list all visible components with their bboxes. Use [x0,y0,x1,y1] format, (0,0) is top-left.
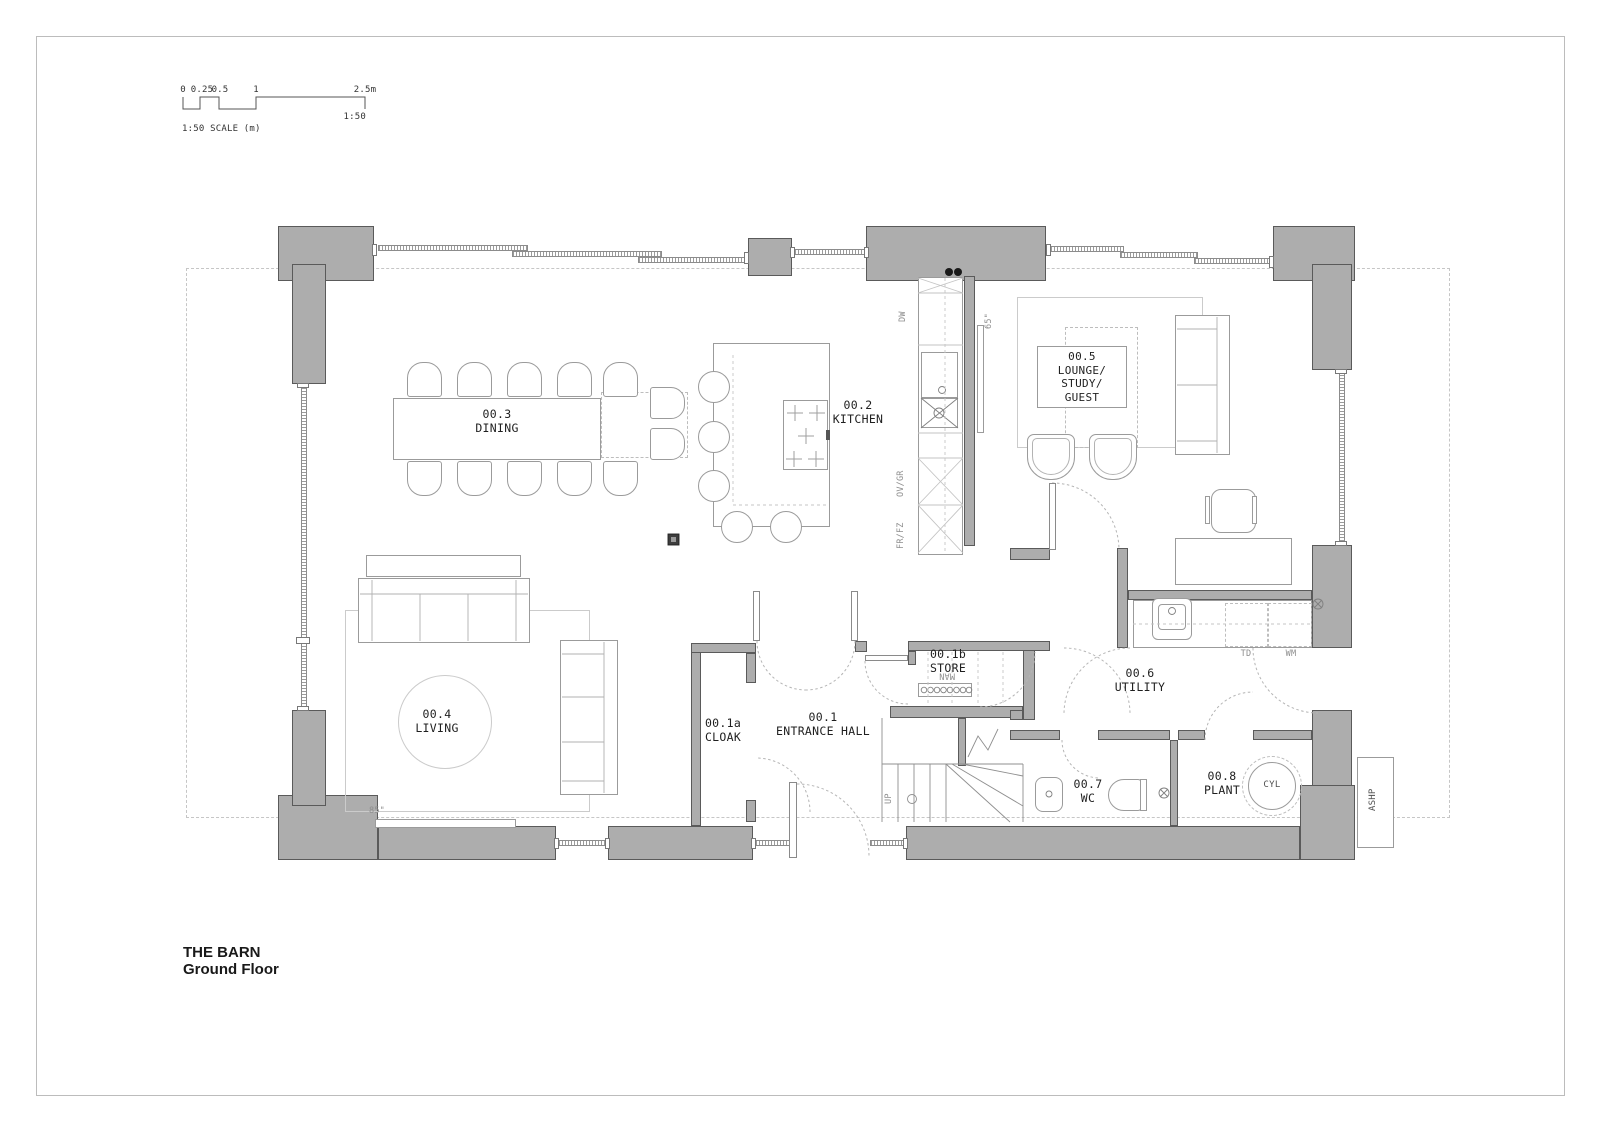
wall-segment [958,718,966,766]
window [558,840,606,846]
wall-segment [1010,548,1050,560]
wall-segment [292,710,326,806]
room-number: 00.2 [818,398,898,412]
wall-segment [1312,545,1352,648]
room-number: 00.1 [763,710,883,724]
toilet-cistern [1140,779,1147,811]
wall-segment [378,826,556,860]
dining-chair [507,362,542,397]
window-jamb [1046,244,1051,256]
room-name: LOUNGE/ [1038,364,1126,378]
heating-manifold [918,683,972,697]
living-sofa-2 [560,640,618,795]
desk-chair-armrest [1252,496,1257,524]
bar-stool [770,511,802,543]
wall-cloak-north [691,643,756,653]
dining-chair [557,362,592,397]
room-label-lounge: 00.5 LOUNGE/ STUDY/ GUEST [1037,346,1127,408]
room-name: KITCHEN [818,412,898,426]
window-jamb [605,838,610,849]
bar-stool [698,470,730,502]
room-name: PLANT [1182,783,1262,797]
utility-sink-bowl [1158,604,1186,630]
window-jamb [372,244,377,256]
dining-chair [457,461,492,496]
room-label-living: 00.4 LIVING [397,707,477,736]
room-number: 00.7 [1048,777,1128,791]
room-number: 00.6 [1100,666,1180,680]
wall-store-south [890,706,1023,718]
wall-segment [1010,710,1023,720]
window-west [301,386,307,708]
cylinder-label: CYL [1252,780,1292,791]
manifold-label: MAN [930,670,964,679]
window-jamb [744,252,749,264]
room-number: 00.1b [908,647,988,661]
wall-kitchen-lounge [964,276,975,546]
dining-chair-optional [603,461,638,496]
washing-machine [1268,603,1312,647]
dining-chair [457,362,492,397]
wall-tv-65 [977,325,984,433]
tub-chair [1027,434,1075,480]
bar-stool [698,421,730,453]
sliding-door-panel [1050,246,1124,252]
room-label-kitchen: 00.2 KITCHEN [818,398,898,427]
window [794,249,866,255]
room-number: 00.3 [437,407,557,421]
drawing-sheet: 0 0.25 0.5 1 2.5m 1:50 1:50 SCALE (m) 00… [0,0,1600,1131]
living-sofa [358,578,530,643]
wall-wc-north [1098,730,1170,740]
wall-segment [1312,264,1352,370]
tv-85-label: 85" [369,807,393,816]
wall-segment [866,226,1046,281]
kitchen-sink-basin [921,398,958,428]
wall-segment [1300,785,1355,860]
room-label-cloak: 00.1a CLOAK [683,716,763,745]
room-name: WC [1048,791,1128,805]
wall-segment [1023,650,1035,720]
sliding-door-panel [1194,258,1271,264]
room-label-hall: 00.1 ENTRANCE HALL [763,710,883,739]
window-jamb [1269,256,1274,268]
sliding-door-panel [638,257,746,263]
wall-segment [748,238,792,276]
window-jamb [297,383,309,388]
wall-segment [746,800,756,822]
window-mullion [296,637,310,644]
sliding-door-panel [378,245,528,251]
desk-chair-armrest [1205,496,1210,524]
tumble-dryer [1225,603,1268,647]
room-name: LIVING [397,721,477,735]
washing-machine-label: WM [1280,650,1302,659]
room-name: UTILITY [1100,680,1180,694]
scale-tick: 0 [178,85,188,95]
window-jamb [1335,541,1347,546]
title-block: THE BARN Ground Floor [183,944,279,978]
dining-chair-optional [650,428,685,460]
window-jamb [903,838,908,849]
window-jamb [864,247,869,258]
dining-chair [507,461,542,496]
scale-tick: 2.5m [348,85,382,95]
bar-stool [698,371,730,403]
room-name: GUEST [1038,391,1126,405]
scale-tick: 0.5 [210,85,230,95]
dining-chair-optional [650,387,685,419]
wall-segment [1117,548,1128,648]
wall-segment [608,826,753,860]
dining-chair [407,461,442,496]
room-label-utility: 00.6 UTILITY [1100,666,1180,695]
scale-caption: 1:50 SCALE (m) [182,124,302,134]
wall-segment [1312,710,1352,790]
room-number: 00.1a [683,716,763,730]
wall-wc-north [1010,730,1060,740]
bar-stool [721,511,753,543]
front-door-leaf [789,782,797,858]
console-table [366,555,521,577]
tub-chair [1089,434,1137,480]
window-jamb [790,247,795,258]
window [870,840,904,846]
wall-segment [746,653,756,683]
desk-chair [1211,489,1256,533]
door-leaf [1049,483,1056,550]
dining-chair-optional [603,362,638,397]
wall-segment [906,826,1300,860]
floor-title: Ground Floor [183,961,279,978]
window-jamb [554,838,559,849]
room-name: DINING [437,421,557,435]
room-number: 00.8 [1182,769,1262,783]
wall-tv-85 [375,819,516,828]
door-leaf [851,591,858,641]
ashp-label: ASHP [1369,778,1382,822]
tv-65-label: 65" [985,308,996,334]
room-label-plant: 00.8 PLANT [1182,769,1262,798]
room-name: STUDY/ [1038,377,1126,391]
wall-plant-north [1178,730,1205,740]
wall-segment [855,641,867,652]
project-title: THE BARN [183,944,279,961]
wall-plant-north [1253,730,1312,740]
room-name: ENTRANCE HALL [763,724,883,738]
window-east [1339,372,1345,542]
window-jamb [1335,369,1347,374]
room-name: CLOAK [683,730,763,744]
scale-tick: 1 [251,85,261,95]
window-jamb [297,706,309,711]
door-leaf [753,591,760,641]
dishwasher-label: DW [899,300,911,334]
room-label-wc: 00.7 WC [1048,777,1128,806]
scale-ratio: 1:50 [340,112,366,122]
fridge-freezer-label: FR/FZ [897,510,909,562]
window [755,840,790,846]
door-leaf [865,655,908,661]
lounge-sofa [1175,315,1230,455]
window-jamb [751,838,756,849]
room-label-dining: 00.3 DINING [437,407,557,436]
dining-chair [557,461,592,496]
room-number: 00.4 [397,707,477,721]
sliding-door-panel [1120,252,1198,258]
tumble-dryer-label: TD [1235,650,1257,659]
wall-wc-plant-divider [1170,740,1178,826]
desk [1175,538,1292,585]
stairs-up-label: UP [885,786,896,812]
wall-segment [292,264,326,384]
room-number: 00.5 [1038,350,1126,364]
oven-grill-label: OV/GR [897,458,909,510]
kitchen-sink-unit [921,352,958,398]
dining-chair [407,362,442,397]
